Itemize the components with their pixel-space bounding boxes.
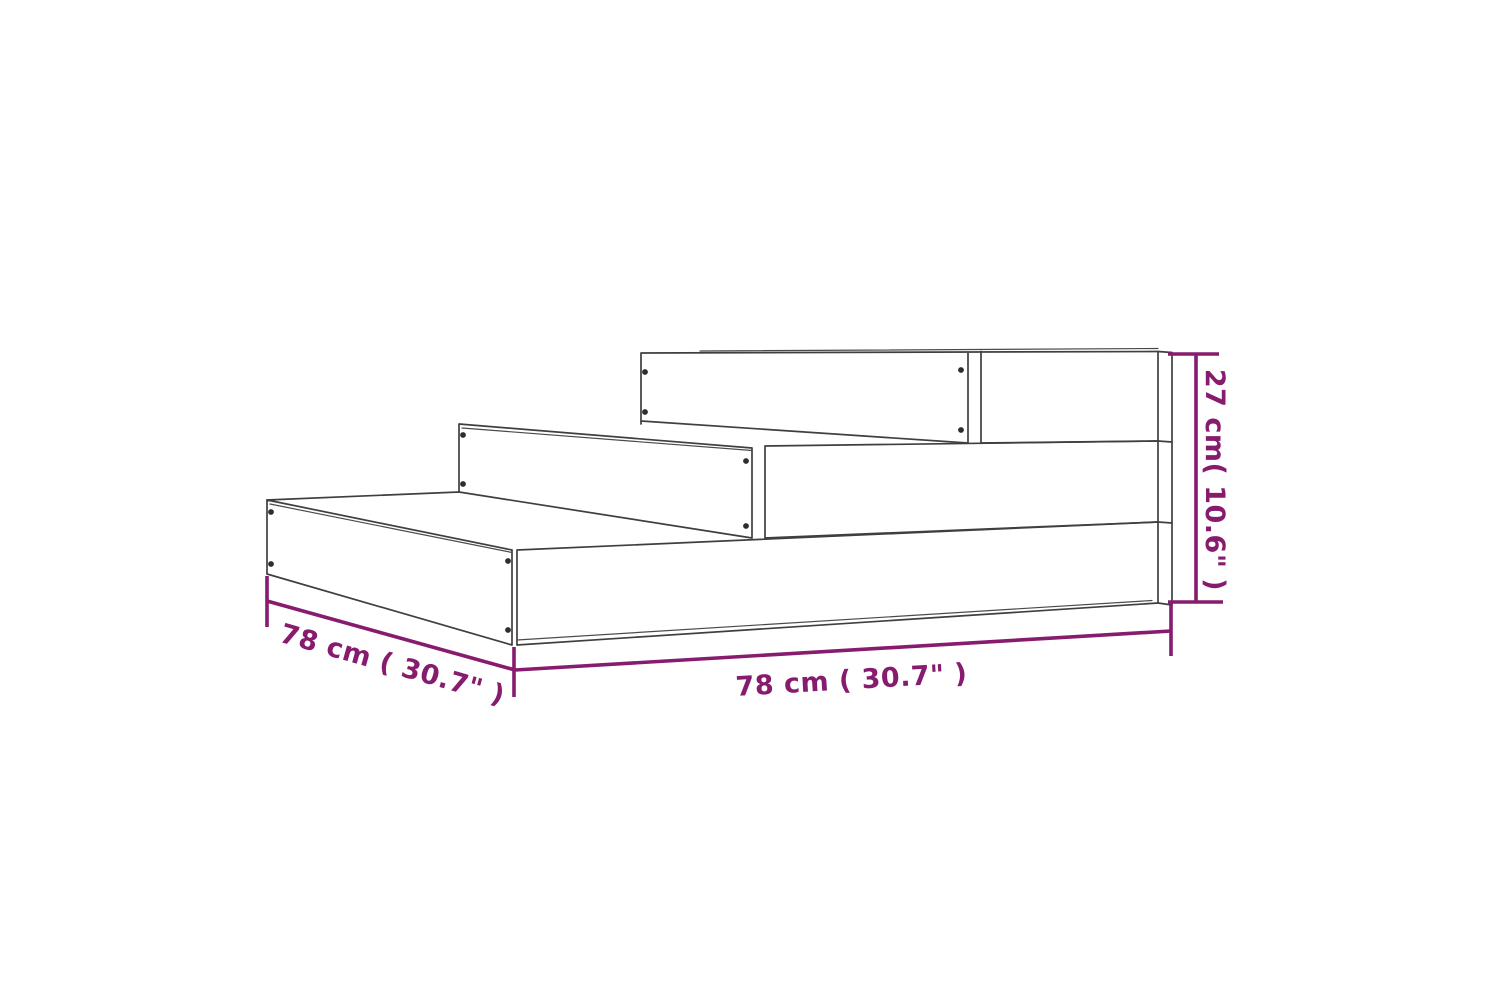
planter-middle-tier xyxy=(267,424,1158,538)
depth-dimension-label: 78 cm ( 30.7" ) xyxy=(276,618,508,711)
planter-right-end-panel xyxy=(1158,352,1172,606)
screw-dot xyxy=(743,523,749,529)
screw-dots xyxy=(268,367,964,633)
depth-dimension: 78 cm ( 30.7" ) xyxy=(267,576,515,711)
screw-dot xyxy=(268,561,274,567)
screw-dot xyxy=(505,558,511,564)
screw-dot xyxy=(642,409,648,415)
width-dimension-label: 78 cm ( 30.7" ) xyxy=(735,658,969,703)
screw-dot xyxy=(743,458,749,464)
screw-dot xyxy=(505,627,511,633)
planter-bottom-tier xyxy=(267,500,1158,645)
screw-dot xyxy=(958,367,964,373)
height-dimension: 27 cm( 10.6" ) xyxy=(1168,354,1230,602)
screw-dot xyxy=(268,509,274,515)
planter-top-tier xyxy=(641,349,1158,444)
screw-dot xyxy=(958,427,964,433)
screw-dot xyxy=(460,481,466,487)
planter-line-drawing: 27 cm( 10.6" ) 78 cm ( 30.7" ) 78 cm ( 3… xyxy=(0,0,1500,1000)
width-dimension: 78 cm ( 30.7" ) xyxy=(514,603,1171,703)
planter-outline xyxy=(267,349,1172,646)
screw-dot xyxy=(642,369,648,375)
product-dimension-diagram: 27 cm( 10.6" ) 78 cm ( 30.7" ) 78 cm ( 3… xyxy=(0,0,1500,1000)
screw-dot xyxy=(460,432,466,438)
height-dimension-label: 27 cm( 10.6" ) xyxy=(1199,369,1230,591)
